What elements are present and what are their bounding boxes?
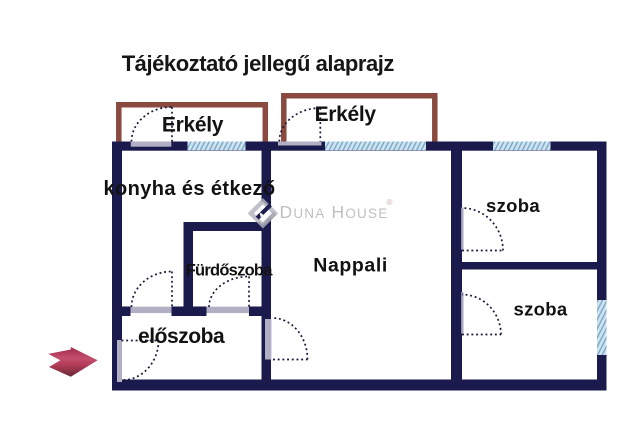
svg-text:Erkély: Erkély [315, 103, 377, 126]
svg-text:konyha és étkező: konyha és étkező [104, 178, 276, 200]
svg-text:Erkély: Erkély [162, 114, 224, 137]
svg-text:szoba: szoba [514, 299, 568, 320]
svg-text:Fürdőszoba: Fürdőszoba [186, 262, 274, 280]
svg-text:®: ® [387, 198, 393, 207]
svg-text:Tájékoztató jellegű alaprajz: Tájékoztató jellegű alaprajz [122, 51, 395, 76]
svg-text:Nappali: Nappali [313, 255, 388, 277]
svg-text:szoba: szoba [486, 195, 540, 216]
svg-text:előszoba: előszoba [138, 325, 225, 348]
